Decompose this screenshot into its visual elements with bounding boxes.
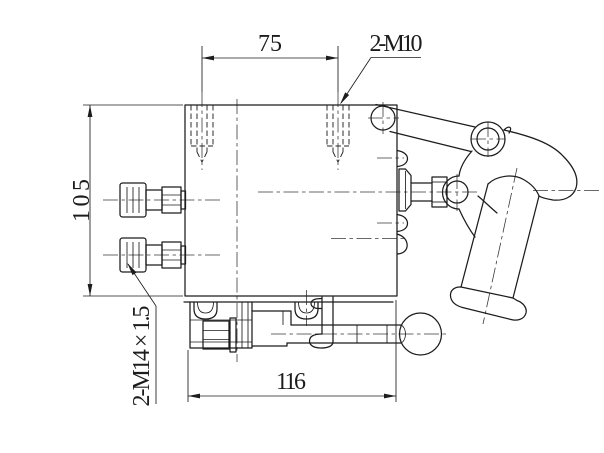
handle-elbow (504, 130, 577, 200)
dim-text-116: 116 (276, 369, 306, 395)
dimension-105: 105 (69, 105, 183, 296)
centerlines (103, 92, 602, 362)
plunger-assembly (397, 151, 447, 255)
lever-arm (376, 105, 475, 128)
dim-text-105: 105 (69, 179, 95, 222)
thread-label-left: 2-M14 × 1.5 (129, 306, 155, 407)
label-2-m10: 2-M10 (338, 31, 423, 106)
threaded-holes-m10 (191, 105, 349, 162)
hand-lever-assembly (376, 105, 577, 321)
label-2-m14: 2-M14 × 1.5 (125, 262, 156, 407)
dimension-75: 75 (202, 31, 338, 92)
thread-label-top: 2-M10 (370, 31, 423, 57)
hook-bracket (310, 334, 334, 348)
grip-top-cap (488, 176, 539, 196)
drawing-canvas: 75 2-M10 105 2-M14 × 1.5 116 (0, 0, 604, 453)
technical-drawing-svg: 75 2-M10 105 2-M14 × 1.5 116 (0, 0, 604, 453)
hex-bolt (203, 321, 229, 349)
pump-body (185, 105, 397, 296)
base-valve-assembly (184, 297, 442, 355)
dimension-116: 116 (188, 300, 396, 402)
dim-text-75: 75 (258, 31, 282, 57)
